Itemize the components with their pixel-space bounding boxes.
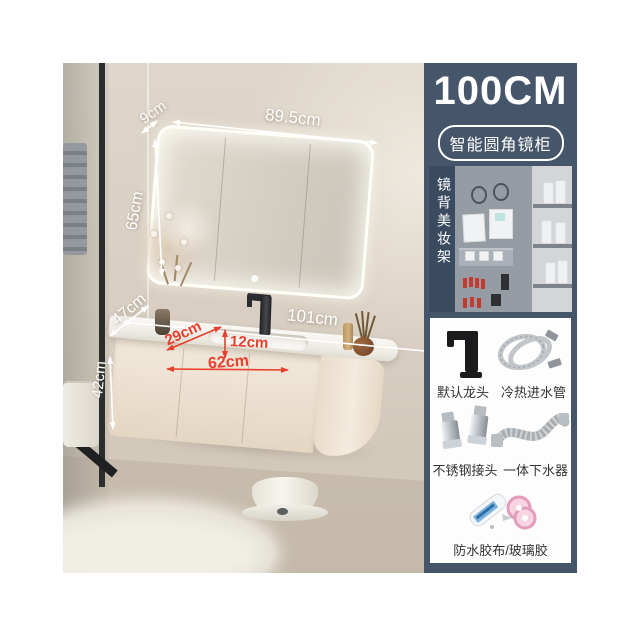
faucet-body — [259, 296, 271, 335]
accessory-label: 冷热进水管 — [496, 382, 571, 401]
flower — [181, 239, 187, 245]
faucet-image — [444, 324, 486, 380]
info-panel: 100CM 智能圆角镜柜 镜背美妆架 — [424, 63, 577, 573]
accessories-panel: 默认龙头 冷热进水管 — [430, 318, 571, 563]
lipstick — [477, 298, 481, 308]
accessory-label: 一体下水器 — [500, 460, 571, 479]
accessory-label: 不锈钢接头 — [430, 460, 500, 479]
flower — [159, 259, 165, 265]
mirror-door-seam — [298, 144, 311, 288]
mirror-back-label: 镜背美妆架 — [434, 177, 454, 267]
dimension-mirror-depth: 9cm — [137, 97, 170, 127]
pocket-window — [493, 251, 503, 261]
lipstick — [463, 298, 467, 308]
lipstick — [481, 279, 485, 289]
perfume-bottle — [343, 323, 353, 350]
product-image: 9cm 89.5cm 65cm 47cm 101cm 29cm 12cm 62c… — [0, 0, 640, 640]
pedestal-logo — [277, 508, 288, 515]
side-shelf — [533, 284, 572, 288]
hoses-image — [492, 326, 564, 378]
size-label: 100CM — [424, 63, 577, 114]
connectors-image — [438, 404, 494, 456]
lipstick — [463, 278, 467, 288]
mirror-door-seam — [213, 137, 226, 281]
flower — [151, 231, 157, 237]
lipstick — [470, 297, 474, 307]
pocket-window — [465, 251, 475, 261]
accessory-label: 防水胶布/玻璃胶 — [430, 540, 571, 559]
dimension-basin-depth: 12cm — [230, 333, 269, 352]
toiletry-bottle — [541, 220, 552, 244]
side-shelf — [533, 244, 572, 248]
necklace-hook — [471, 186, 487, 204]
sealant-image — [462, 480, 538, 538]
dried-flowers — [159, 199, 215, 257]
dimension-basin-width: 62cm — [207, 353, 249, 374]
lipstick — [475, 278, 479, 288]
side-shelf — [533, 204, 572, 208]
diffuser-jar — [353, 337, 374, 356]
makeup-item — [491, 294, 501, 306]
pocket-window — [479, 251, 489, 261]
towel-radiator — [63, 143, 87, 255]
flower — [175, 265, 181, 271]
vanity-unit — [98, 315, 448, 476]
cabinet-door-seam — [176, 348, 185, 438]
lipstick — [469, 277, 473, 287]
toiletry-bottle — [545, 262, 556, 284]
accessory-label: 默认龙头 — [430, 382, 496, 401]
toiletry-bottle — [557, 260, 568, 284]
mirror-touch-sensor — [251, 275, 259, 283]
stored-card — [462, 213, 485, 242]
toiletry-bottle — [555, 222, 566, 244]
stored-card-detail — [495, 213, 505, 221]
feature-badge: 智能圆角镜柜 — [437, 125, 563, 161]
mirror-back-photo: 镜背美妆架 — [429, 166, 572, 312]
toiletry-bottle — [555, 180, 566, 204]
drain-image — [490, 408, 570, 456]
necklace-hook — [493, 183, 509, 201]
toiletry-bottle — [543, 182, 554, 204]
mascara — [501, 274, 509, 290]
flower — [166, 213, 172, 219]
vanity-cabinet-side — [313, 356, 385, 460]
faucet-outlet — [247, 299, 252, 307]
